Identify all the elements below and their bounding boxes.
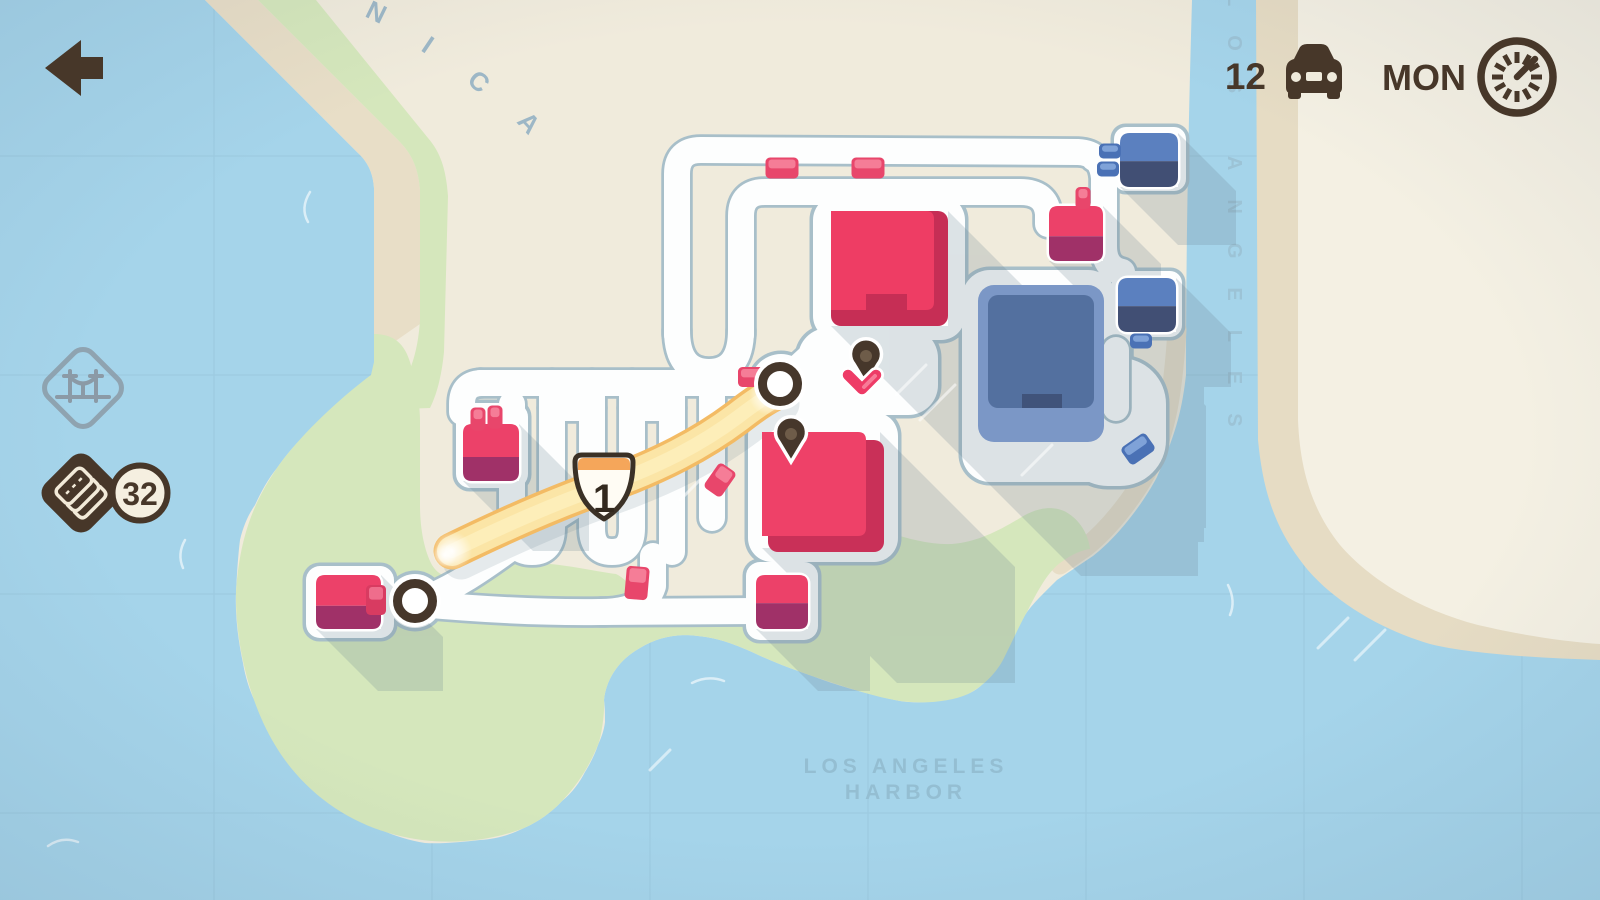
svg-text:MON: MON bbox=[1382, 57, 1466, 98]
svg-text:12: 12 bbox=[1225, 56, 1266, 97]
svg-text:32: 32 bbox=[122, 476, 158, 512]
